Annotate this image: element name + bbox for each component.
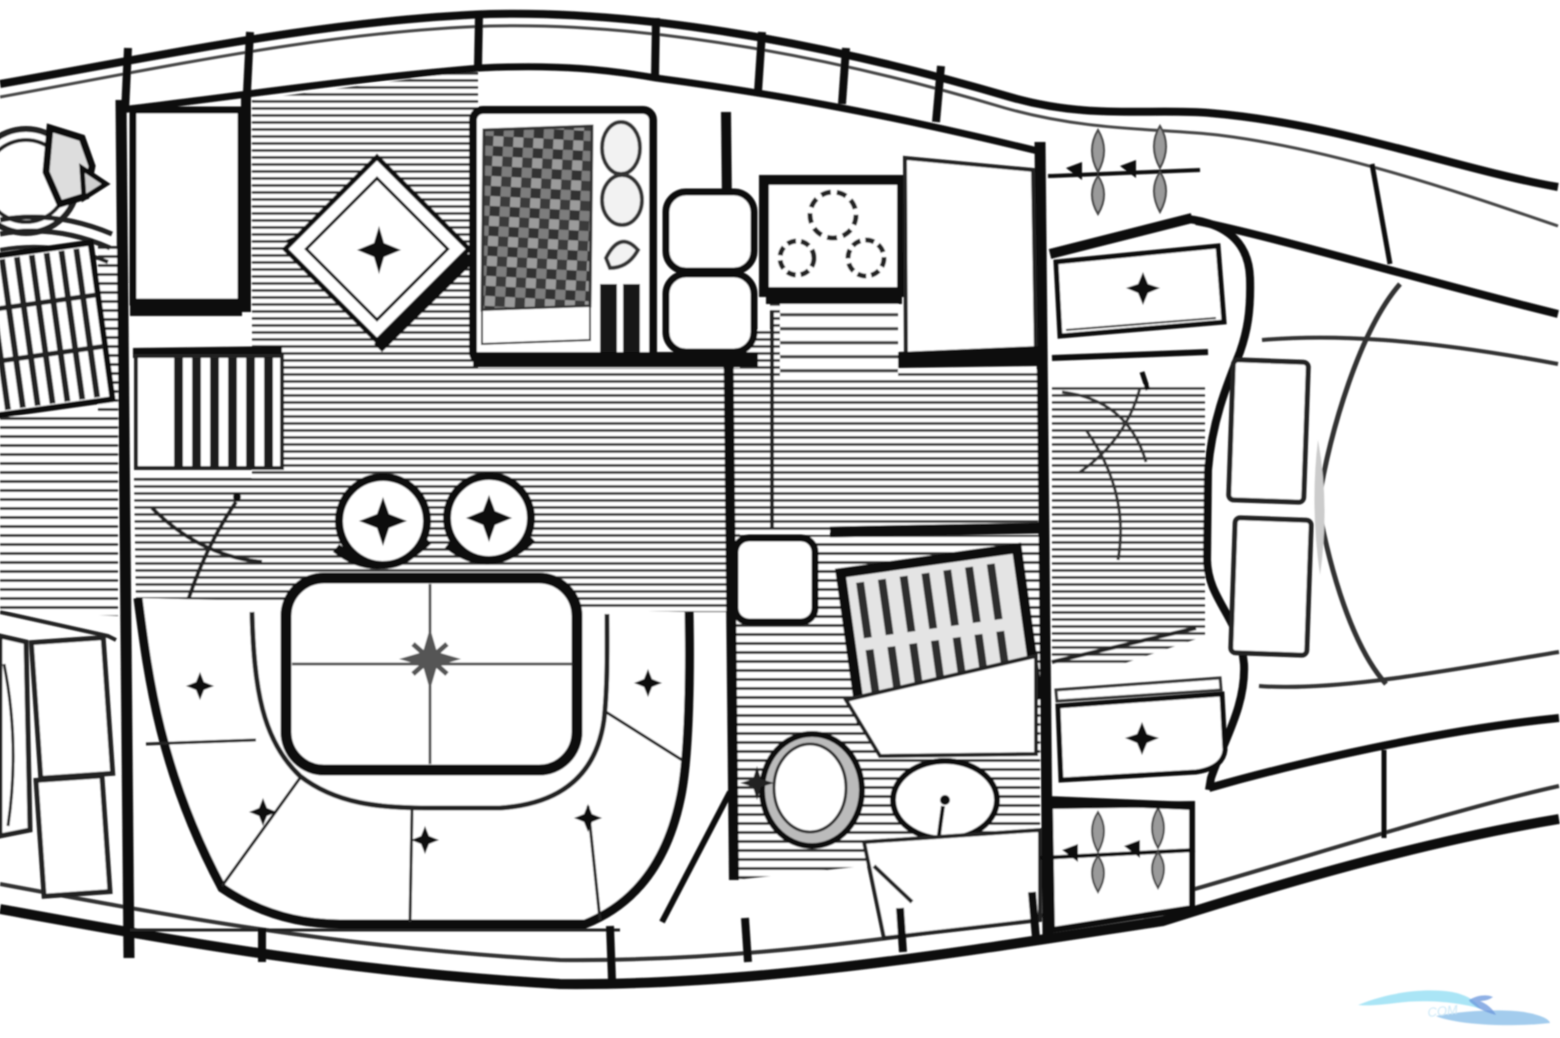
svg-text:COM: COM (1427, 1002, 1459, 1020)
